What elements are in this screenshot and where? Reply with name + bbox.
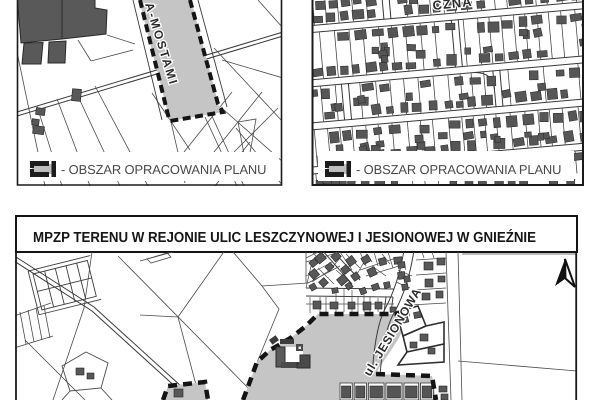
svg-text:- OBSZAR OPRACOWANIA PLANU: - OBSZAR OPRACOWANIA PLANU (61, 162, 266, 177)
svg-text:MPZP TERENU W REJONIE ULIC LES: MPZP TERENU W REJONIE ULIC LESZCZYNOWEJ … (33, 229, 536, 246)
svg-text:- OBSZAR OPRACOWANIA PLANU: - OBSZAR OPRACOWANIA PLANU (356, 162, 561, 177)
